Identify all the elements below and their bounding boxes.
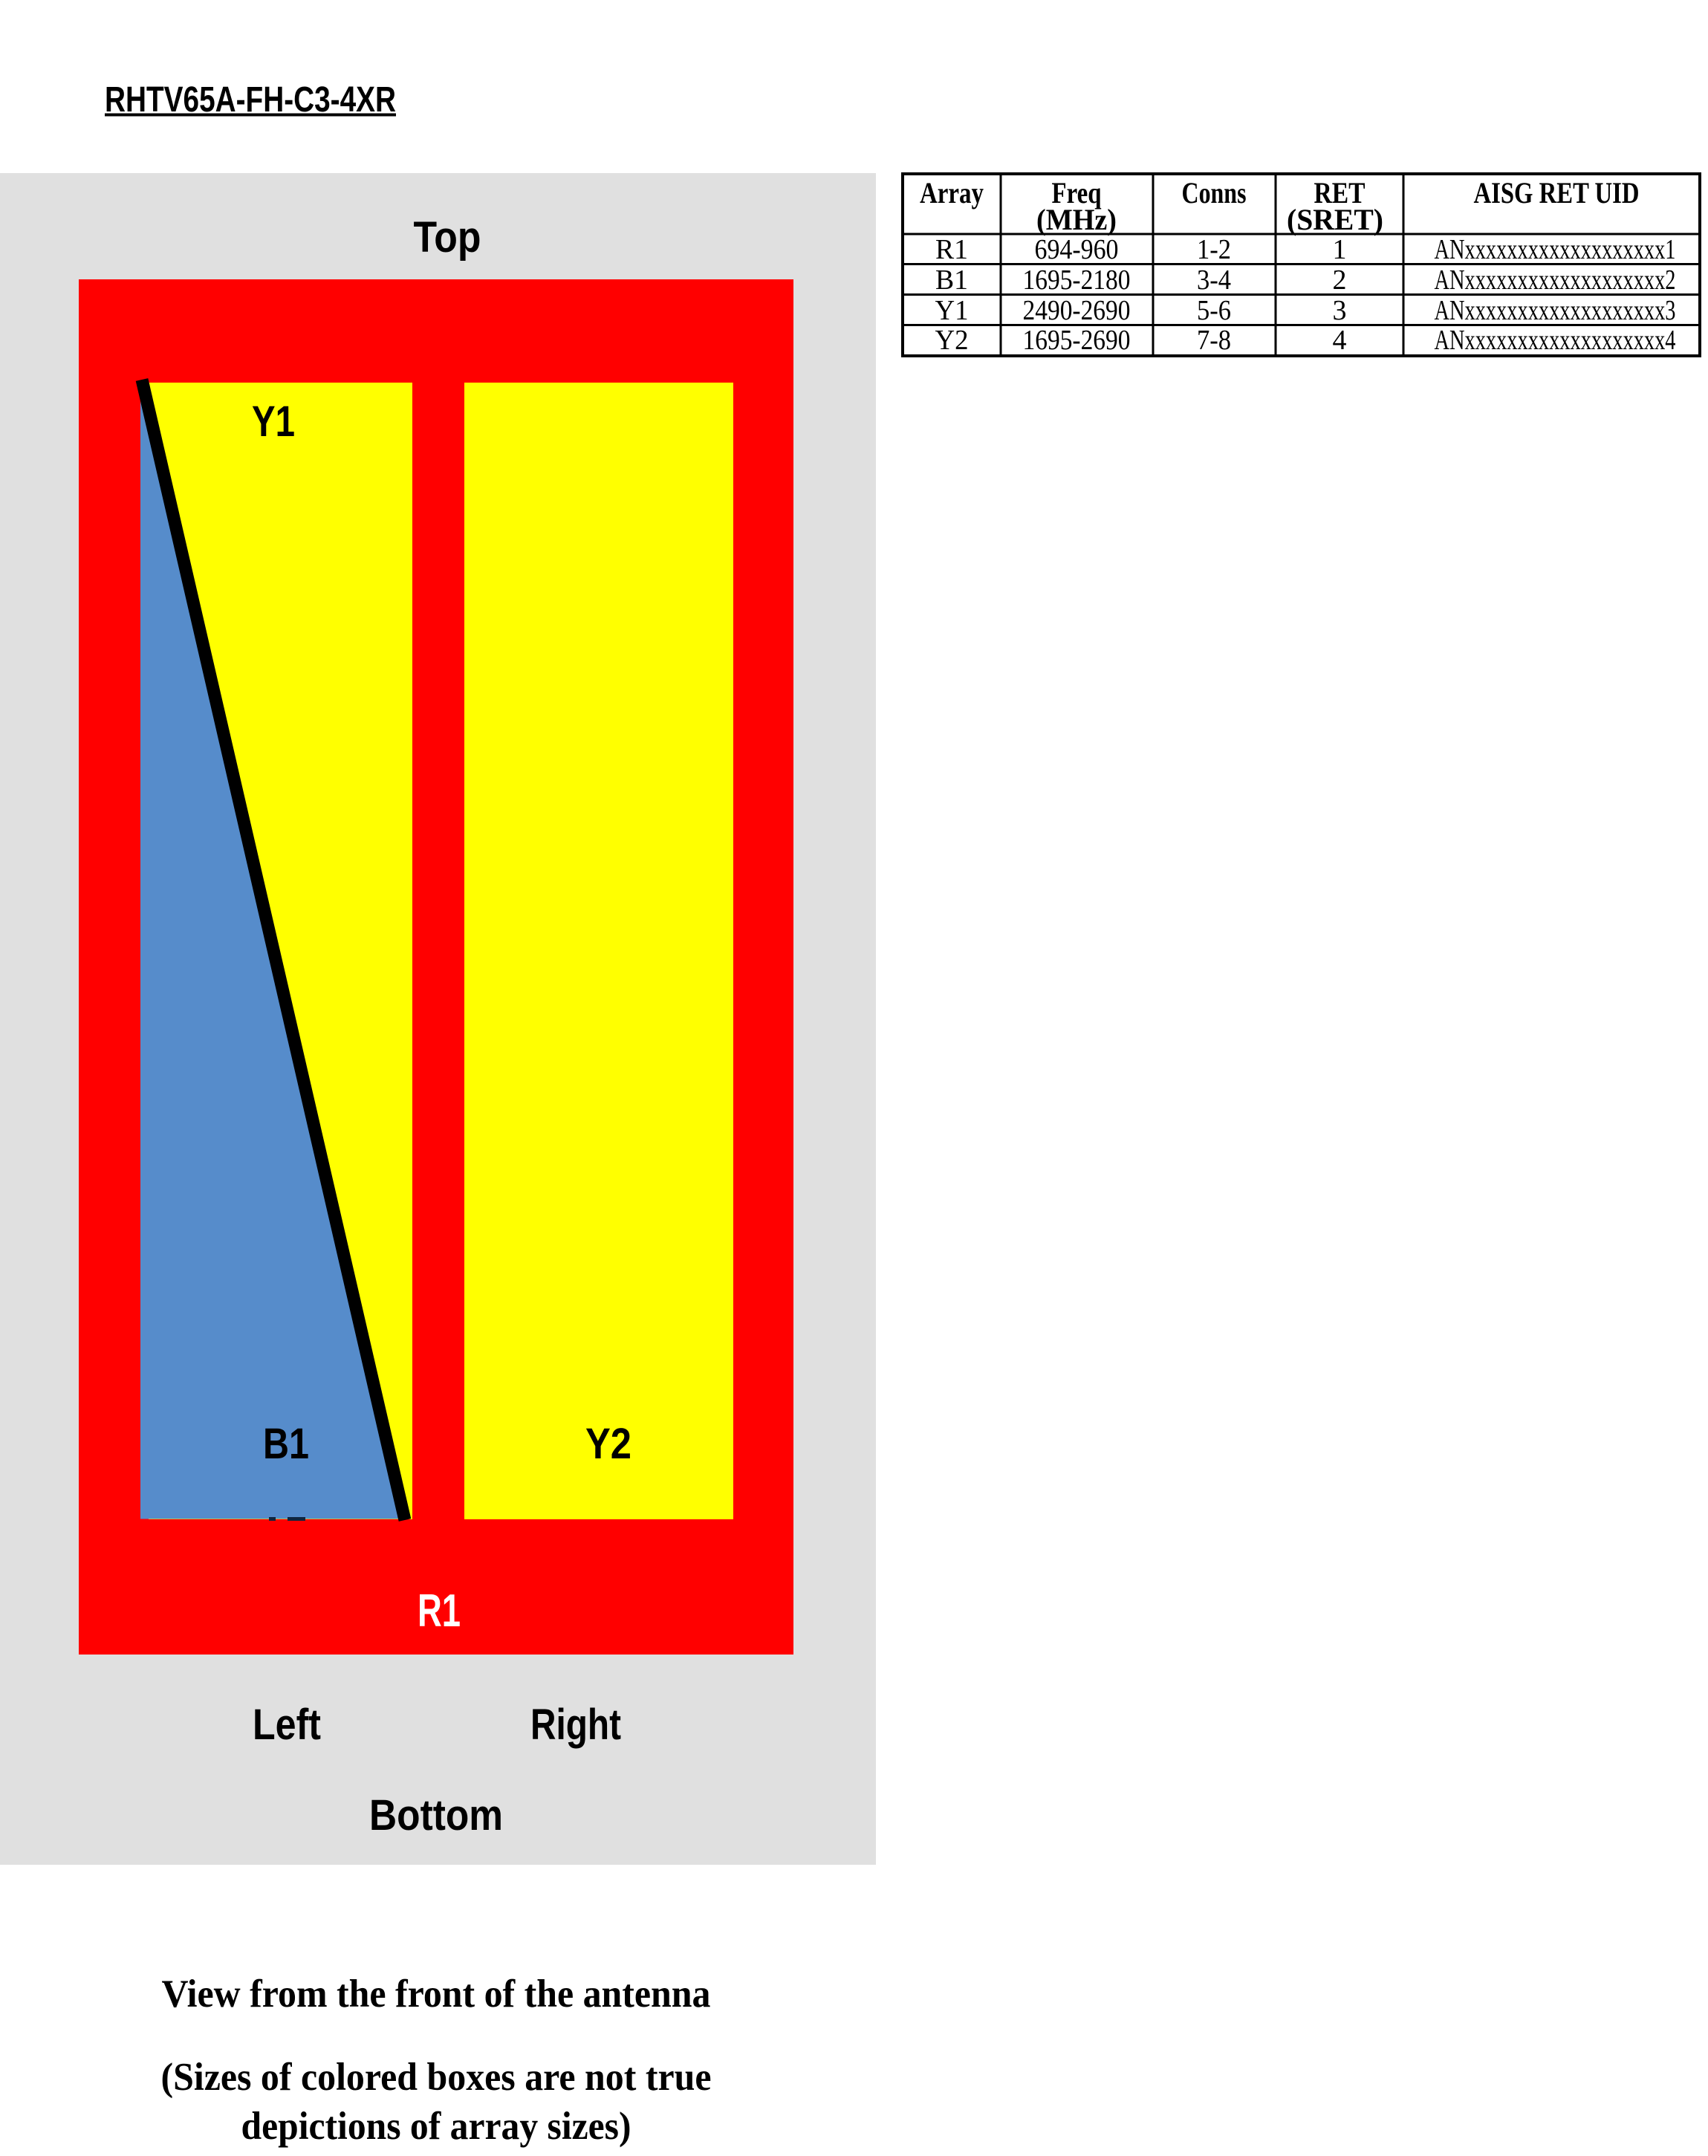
svg-text:4: 4 [1333,325,1347,356]
svg-text:Left: Left [253,1701,321,1749]
svg-text:(MHz): (MHz) [1036,203,1117,236]
svg-text:Right: Right [530,1701,621,1749]
svg-text:2490-2690: 2490-2690 [1023,295,1131,326]
svg-text:B1: B1 [935,264,968,296]
svg-text:Y2: Y2 [935,325,969,356]
svg-text:3: 3 [1333,295,1347,326]
svg-text:ANxxxxxxxxxxxxxxxxxxx4: ANxxxxxxxxxxxxxxxxxxx4 [1435,325,1676,356]
svg-text:3-4: 3-4 [1197,264,1231,296]
svg-text:1: 1 [1333,234,1347,265]
svg-text:Y1: Y1 [252,397,295,446]
svg-text:R1: R1 [935,234,968,265]
svg-text:694-960: 694-960 [1035,234,1119,265]
svg-text:Array: Array [920,176,984,210]
svg-text:Top: Top [414,213,481,262]
svg-text:1695-2690: 1695-2690 [1023,325,1131,356]
svg-text:B1: B1 [263,1420,309,1468]
svg-text:Bottom: Bottom [369,1791,503,1840]
svg-text:(SRET): (SRET) [1287,203,1383,236]
svg-text:5-6: 5-6 [1197,295,1231,326]
svg-text:R1: R1 [418,1585,461,1637]
svg-text:Y2: Y2 [585,1420,631,1468]
svg-text:ANxxxxxxxxxxxxxxxxxxx1: ANxxxxxxxxxxxxxxxxxxx1 [1435,234,1676,265]
svg-text:View from the front of the ant: View from the front of the antenna [162,1972,711,2016]
svg-text:Y1: Y1 [935,295,969,326]
svg-text:ANxxxxxxxxxxxxxxxxxxx2: ANxxxxxxxxxxxxxxxxxxx2 [1435,264,1676,296]
svg-text:(Sizes of colored boxes are no: (Sizes of colored boxes are not true [161,2056,712,2099]
svg-text:2: 2 [1333,264,1347,296]
svg-text:1695-2180: 1695-2180 [1023,264,1131,296]
svg-text:depictions of array sizes): depictions of array sizes) [241,2105,631,2148]
svg-text:ANxxxxxxxxxxxxxxxxxxx3: ANxxxxxxxxxxxxxxxxxxx3 [1435,295,1676,326]
svg-text:7-8: 7-8 [1197,325,1231,356]
svg-text:Conns: Conns [1182,176,1247,210]
svg-text:1-2: 1-2 [1197,234,1231,265]
svg-text:AISG RET UID: AISG RET UID [1474,176,1640,210]
